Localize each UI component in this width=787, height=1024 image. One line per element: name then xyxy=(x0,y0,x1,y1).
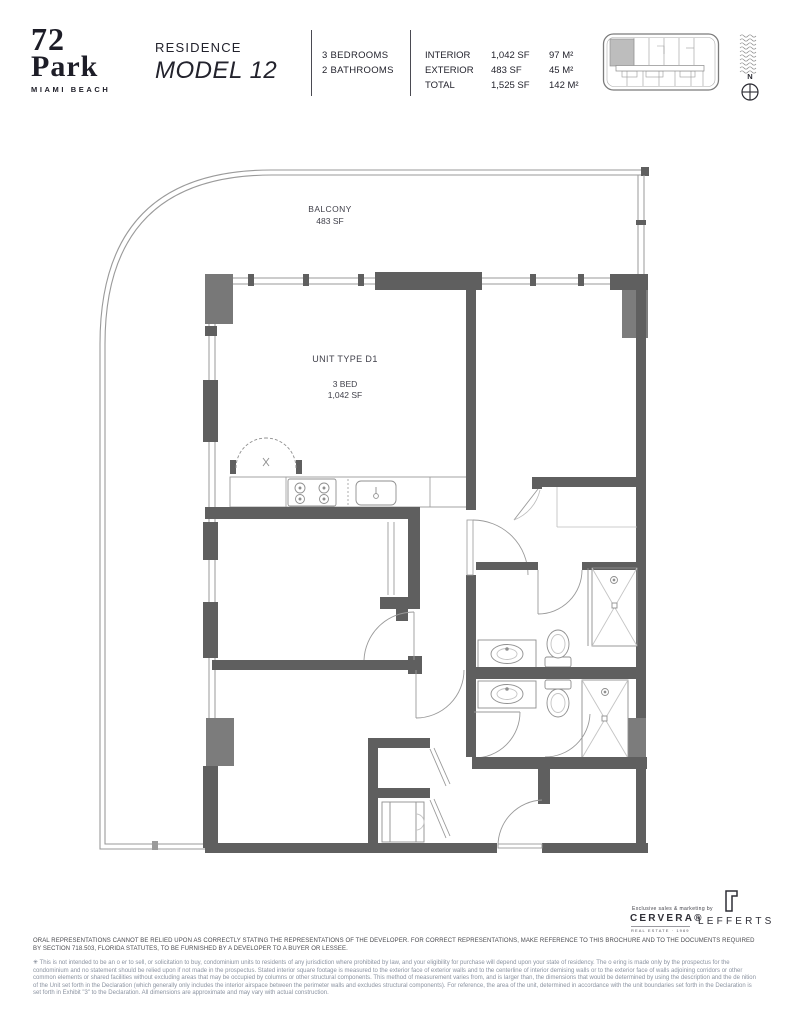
highlighted-unit xyxy=(610,39,634,66)
bath-divider-wall xyxy=(476,667,637,679)
area-row-m2: 45 M² xyxy=(549,63,593,78)
lefferts-logo: LEFFERTS xyxy=(698,916,775,927)
bathrooms-label: 2 BATHROOMS xyxy=(322,63,394,78)
lefferts-logo-icon xyxy=(721,889,741,913)
header-divider-1 xyxy=(311,30,312,96)
keyplan-corridor xyxy=(616,66,704,72)
shower-icon xyxy=(582,680,628,758)
brand-city: MIAMI BEACH xyxy=(31,85,110,94)
cervera-logo: CERVERA® xyxy=(630,913,704,924)
kitchen-wall xyxy=(205,507,420,519)
disclaimer-marker-icon: ✳ xyxy=(33,960,38,966)
bedroom-corridor xyxy=(212,612,464,718)
area-row-sf: 1,042 SF xyxy=(491,48,549,63)
bathroom2 xyxy=(472,680,647,769)
area-row-m2: 142 M² xyxy=(549,78,593,93)
shower-icon xyxy=(588,568,637,646)
left-wall-windows xyxy=(203,324,234,848)
bedrooms-label: 3 BEDROOMS xyxy=(322,48,394,63)
balcony-label: BALCONY xyxy=(308,204,351,214)
area-row-sf: 483 SF xyxy=(491,63,549,78)
disclaimer-secondary: ✳ This is not intended to be an o er to … xyxy=(33,960,759,998)
brand-logo: 72 Park MIAMI BEACH xyxy=(31,26,110,94)
toilet-icon xyxy=(545,630,571,667)
sink-icon xyxy=(478,681,536,708)
cervera-subtitle: REAL ESTATE · 1969 xyxy=(631,926,690,933)
residence-block: RESIDENCE MODEL 12 xyxy=(155,40,277,85)
floor-plan: BALCONY 483 SF UNIT TYPE D1 3 BED 1,042 … xyxy=(90,150,690,880)
marketing-tagline: Exclusive sales & marketing by xyxy=(632,906,713,912)
glass-slider-wall xyxy=(205,272,648,338)
hall-closets xyxy=(368,738,450,848)
area-row-label: TOTAL xyxy=(425,78,491,93)
door-leaf xyxy=(467,520,473,575)
kitchen-counter xyxy=(230,477,470,507)
brand-number: 72 xyxy=(31,26,110,52)
bath-bottom-wall xyxy=(472,757,647,769)
ocean-waves-icon xyxy=(739,33,757,75)
balcony-end-window xyxy=(636,175,646,274)
disclaimer-secondary-text: This is not intended to be an o er to se… xyxy=(33,960,756,996)
kitchen-cooktop-icon xyxy=(288,479,336,506)
door-leaf xyxy=(514,489,538,520)
wall-column xyxy=(205,274,233,324)
bed-bath-block: 3 BEDROOMS 2 BATHROOMS xyxy=(322,48,394,78)
balcony-area-label: 483 SF xyxy=(316,216,343,226)
disclaimer-primary: ORAL REPRESENTATIONS CANNOT BE RELIED UP… xyxy=(33,938,755,953)
area-row-m2: 97 M² xyxy=(549,48,593,63)
compass-north-icon: N xyxy=(736,70,764,104)
unit-type-label: UNIT TYPE D1 xyxy=(312,354,377,364)
bedroom2-partition xyxy=(514,477,637,527)
area-row-label: EXTERIOR xyxy=(425,63,491,78)
header-divider-2 xyxy=(410,30,411,96)
building-keyplan-icon xyxy=(602,32,722,94)
bottom-wall xyxy=(542,843,648,853)
wall-column xyxy=(628,718,646,762)
sink-icon xyxy=(478,640,536,668)
compass-north-label: N xyxy=(747,72,752,81)
area-row-sf: 1,525 SF xyxy=(491,78,549,93)
brand-name: Park xyxy=(31,52,110,82)
area-table: INTERIOR 1,042 SF 97 M² EXTERIOR 483 SF … xyxy=(425,48,593,93)
washer-dryer-closet xyxy=(230,438,302,474)
brochure-page: 72 Park MIAMI BEACH RESIDENCE MODEL 12 3… xyxy=(0,0,787,1024)
wall-column xyxy=(206,718,234,766)
bathroom1 xyxy=(476,562,637,679)
entry-door xyxy=(498,768,550,848)
kitchen-sink-icon xyxy=(356,481,396,505)
unit-beds-label: 3 BED xyxy=(333,379,358,389)
residence-label: RESIDENCE xyxy=(155,40,277,55)
area-row-label: INTERIOR xyxy=(425,48,491,63)
slider-header xyxy=(375,272,482,290)
kitchen xyxy=(205,477,470,519)
unit-area-label: 1,042 SF xyxy=(328,390,363,400)
toilet-icon xyxy=(545,680,571,717)
bottom-wall xyxy=(205,843,497,853)
water-heater-icon xyxy=(382,802,424,842)
pantry-closet xyxy=(380,519,420,621)
model-name: MODEL 12 xyxy=(155,57,277,85)
